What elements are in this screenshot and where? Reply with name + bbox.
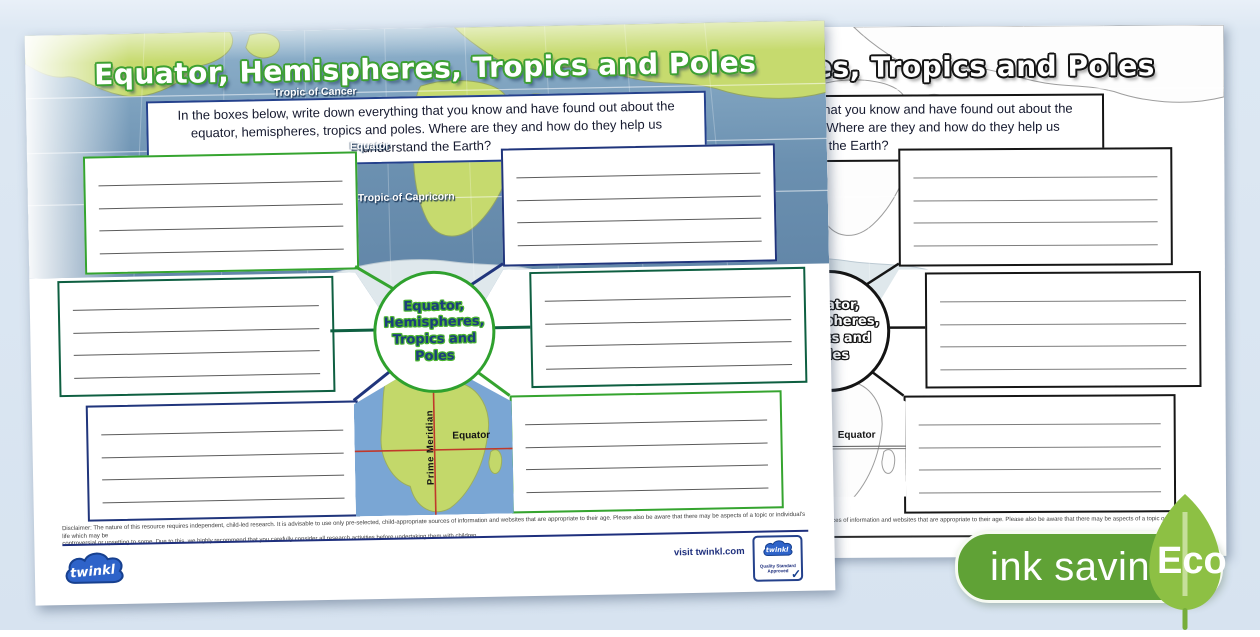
circle-line: Poles xyxy=(384,348,485,367)
circle-line: Hemispheres, xyxy=(384,314,485,333)
circle-line: Tropics and xyxy=(384,331,485,350)
eco-label: Eco xyxy=(1157,540,1227,583)
preview-background: Equator, Hemispheres, Tropics and Poles … xyxy=(0,0,1260,630)
worksheet-front-page: Equator, Hemispheres, Tropics and Poles … xyxy=(25,20,836,605)
